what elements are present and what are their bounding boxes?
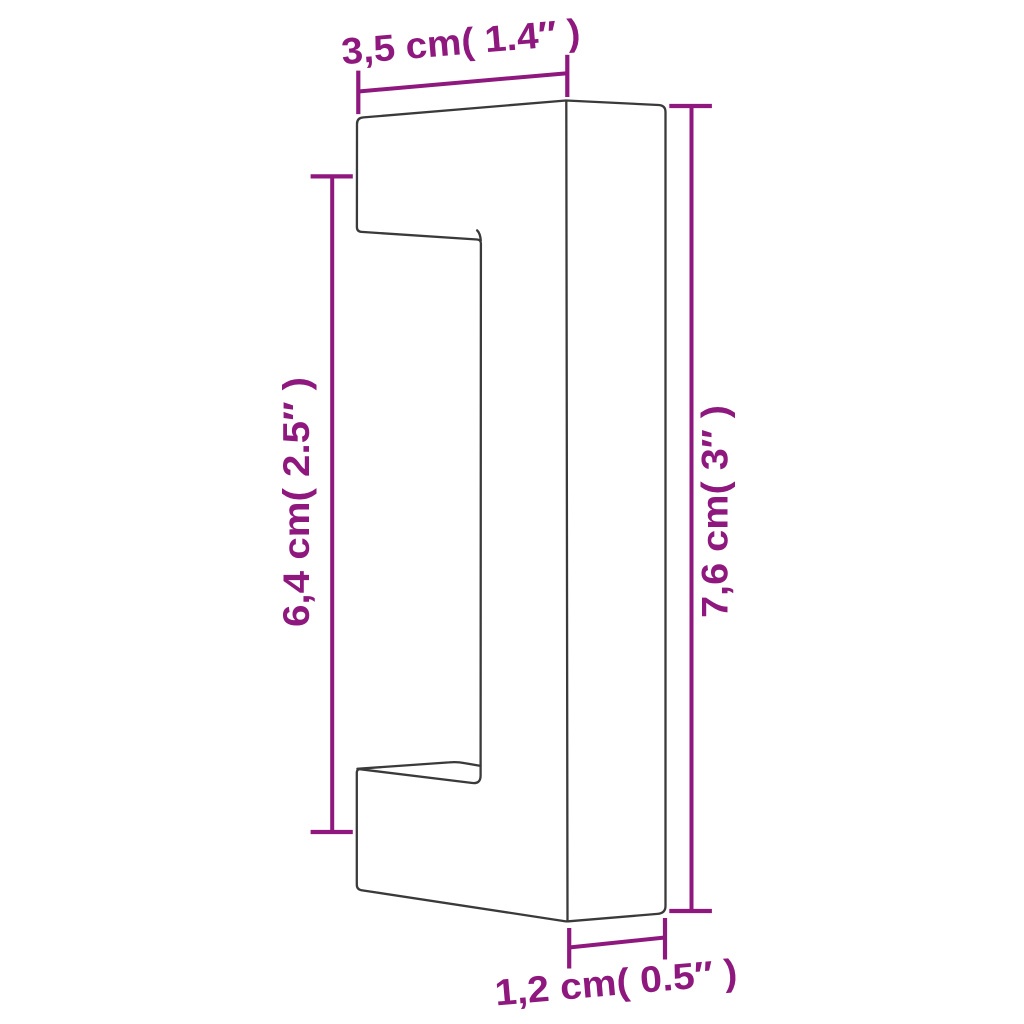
svg-text:3,5 cm( 1.4″ ): 3,5 cm( 1.4″ )	[340, 11, 582, 72]
svg-text:1,2 cm( 0.5″ ): 1,2 cm( 0.5″ )	[493, 951, 739, 1013]
svg-text:7,6 cm( 3″ ): 7,6 cm( 3″ )	[695, 405, 736, 618]
svg-text:6,4 cm( 2.5″ ): 6,4 cm( 2.5″ )	[276, 377, 317, 627]
